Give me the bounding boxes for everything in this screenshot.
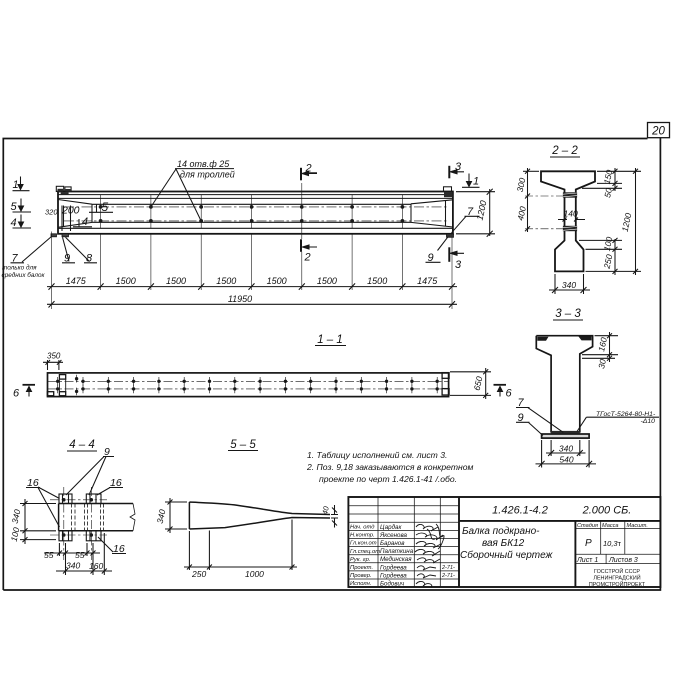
svg-text:Провер.: Провер. bbox=[350, 573, 372, 579]
svg-text:5: 5 bbox=[11, 201, 18, 213]
svg-text:200: 200 bbox=[61, 205, 80, 217]
svg-text:Балка подкрано-: Балка подкрано- bbox=[462, 526, 540, 537]
svg-text:4: 4 bbox=[11, 217, 17, 229]
svg-text:Сборочный чертеж: Сборочный чертеж bbox=[460, 549, 554, 561]
svg-text:Гл.кон.от: Гл.кон.от bbox=[350, 541, 377, 547]
svg-text:Масса: Масса bbox=[602, 523, 619, 529]
svg-text:Гордеева: Гордеева bbox=[380, 572, 407, 579]
svg-text:2-71-: 2-71- bbox=[441, 573, 455, 579]
svg-text:Листов 3: Листов 3 bbox=[608, 557, 638, 564]
svg-text:3: 3 bbox=[455, 259, 462, 271]
svg-text:340: 340 bbox=[559, 444, 573, 454]
svg-text:Баранов: Баранов bbox=[380, 540, 405, 547]
svg-text:Р: Р bbox=[585, 538, 592, 549]
svg-text:-Δ10: -Δ10 bbox=[641, 418, 656, 425]
svg-text:ГОССТРОЙ СССР: ГОССТРОЙ СССР bbox=[594, 567, 640, 575]
svg-text:5: 5 bbox=[102, 200, 109, 214]
svg-text:средних балок: средних балок bbox=[2, 271, 46, 279]
svg-text:Н.контр.: Н.контр. bbox=[350, 533, 375, 539]
svg-text:2.000 СБ.: 2.000 СБ. bbox=[582, 505, 632, 517]
svg-text:Гл.спец.от: Гл.спец.от bbox=[350, 549, 380, 555]
svg-text:250: 250 bbox=[191, 569, 206, 579]
svg-text:2: 2 bbox=[304, 252, 311, 264]
svg-text:10,3т: 10,3т bbox=[603, 539, 622, 548]
svg-text:1 – 1: 1 – 1 bbox=[317, 334, 343, 346]
svg-text:1: 1 bbox=[13, 179, 19, 191]
svg-text:20: 20 bbox=[651, 126, 665, 138]
svg-text:Исполн.: Исполн. bbox=[350, 581, 371, 587]
svg-text:1500: 1500 bbox=[267, 276, 287, 286]
svg-text:Проект.: Проект. bbox=[350, 565, 373, 571]
svg-text:1500: 1500 bbox=[166, 276, 186, 286]
svg-text:340: 340 bbox=[66, 561, 80, 571]
svg-text:2 – 2: 2 – 2 bbox=[551, 145, 578, 157]
svg-text:11950: 11950 bbox=[228, 294, 252, 304]
svg-text:Стадия: Стадия bbox=[577, 523, 598, 529]
svg-text:1475: 1475 bbox=[66, 276, 87, 286]
svg-text:320: 320 bbox=[45, 208, 58, 217]
svg-text:5 – 5: 5 – 5 bbox=[230, 439, 256, 451]
svg-text:Яксенова: Яксенова bbox=[379, 532, 408, 539]
svg-text:Бодович: Бодович bbox=[380, 581, 405, 588]
svg-text:55: 55 bbox=[44, 550, 54, 560]
svg-text:350: 350 bbox=[47, 352, 61, 361]
svg-text:1500: 1500 bbox=[216, 276, 236, 286]
svg-text:ЛЕНИНГРАДСКИЙ: ЛЕНИНГРАДСКИЙ bbox=[593, 574, 640, 582]
svg-text:ПРОМСТРОЙПРОЕКТ: ПРОМСТРОЙПРОЕКТ bbox=[589, 580, 646, 588]
svg-text:Гордеева: Гордеева bbox=[380, 564, 407, 571]
svg-text:1500: 1500 bbox=[367, 276, 387, 286]
svg-text:1.426.1-4.2: 1.426.1-4.2 bbox=[492, 505, 548, 517]
svg-text:1: 1 bbox=[473, 176, 479, 188]
svg-text:только для: только для bbox=[2, 264, 37, 272]
svg-text:4 – 4: 4 – 4 bbox=[69, 439, 95, 451]
svg-text:160: 160 bbox=[89, 561, 103, 571]
svg-text:для троллей: для троллей bbox=[180, 170, 235, 180]
svg-text:340: 340 bbox=[562, 280, 576, 290]
svg-text:3: 3 bbox=[455, 161, 462, 173]
svg-text:вая БК12: вая БК12 bbox=[482, 538, 525, 549]
svg-text:Нач. отд: Нач. отд bbox=[350, 525, 375, 531]
svg-text:540: 540 bbox=[559, 454, 573, 464]
svg-text:Цардак: Цардак bbox=[380, 524, 402, 531]
svg-text:Лист 1: Лист 1 bbox=[576, 557, 598, 564]
svg-text:1500: 1500 bbox=[317, 276, 337, 286]
svg-text:6: 6 bbox=[506, 388, 513, 400]
svg-text:140: 140 bbox=[564, 209, 578, 219]
svg-text:Рук. гр.: Рук. гр. bbox=[350, 557, 370, 563]
svg-text:1500: 1500 bbox=[116, 276, 136, 286]
svg-text:55: 55 bbox=[75, 550, 85, 560]
svg-text:4: 4 bbox=[82, 216, 88, 228]
svg-text:1475: 1475 bbox=[417, 276, 438, 286]
svg-text:проекте по черт 1.426.1-41 /.о: проекте по черт 1.426.1-41 /.обо. bbox=[319, 474, 457, 484]
svg-text:2. Поз. 9,18 заказываются в ко: 2. Поз. 9,18 заказываются в конкретном bbox=[306, 462, 473, 472]
svg-text:1. Таблицу исполнений см. лис: 1. Таблицу исполнений см. лист 3. bbox=[307, 450, 447, 460]
svg-text:6: 6 bbox=[13, 388, 20, 400]
svg-text:Мединская: Мединская bbox=[380, 556, 412, 563]
svg-text:3 – 3: 3 – 3 bbox=[555, 308, 581, 320]
svg-text:14 отв.ф 25: 14 отв.ф 25 bbox=[177, 159, 230, 169]
svg-text:1000: 1000 bbox=[245, 569, 264, 579]
svg-text:Масшт.: Масшт. bbox=[627, 523, 648, 529]
svg-text:Палаткина: Палаткина bbox=[380, 548, 414, 555]
svg-text:2-71-: 2-71- bbox=[441, 565, 455, 571]
